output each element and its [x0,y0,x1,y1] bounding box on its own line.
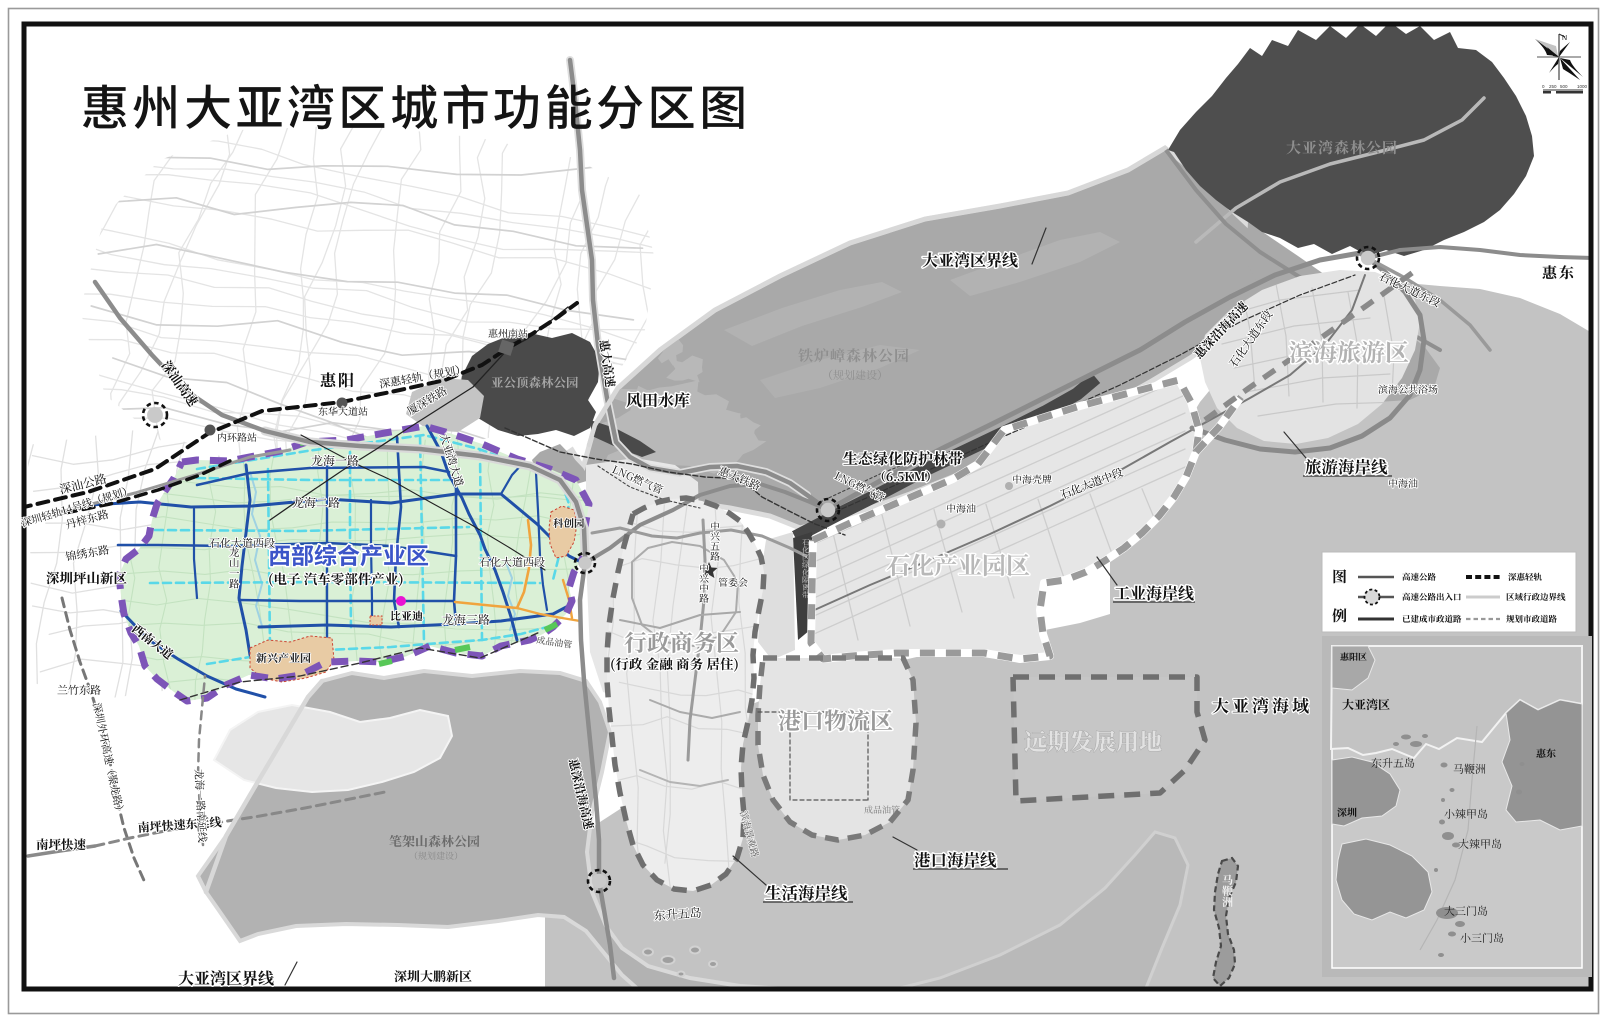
svg-text:1000: 1000 [1577,84,1588,89]
svg-text:250: 250 [1549,84,1557,89]
svg-text:500: 500 [1560,84,1568,89]
svg-text:N: N [1562,35,1567,42]
